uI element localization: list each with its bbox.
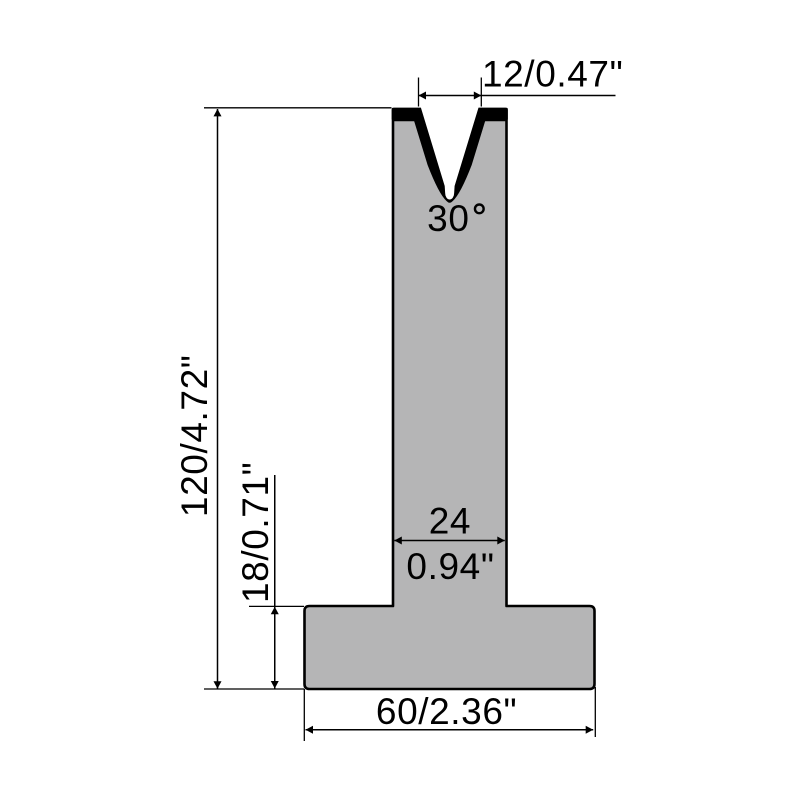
svg-text:24: 24 <box>429 500 471 541</box>
svg-text:60/2.36": 60/2.36" <box>376 691 517 732</box>
svg-text:18/0.71": 18/0.71" <box>235 462 276 603</box>
svg-text:12/0.47": 12/0.47" <box>482 54 623 95</box>
svg-text:30: 30 <box>427 198 469 239</box>
svg-text:0.94": 0.94" <box>406 546 494 587</box>
svg-text:120/4.72": 120/4.72" <box>174 355 215 518</box>
